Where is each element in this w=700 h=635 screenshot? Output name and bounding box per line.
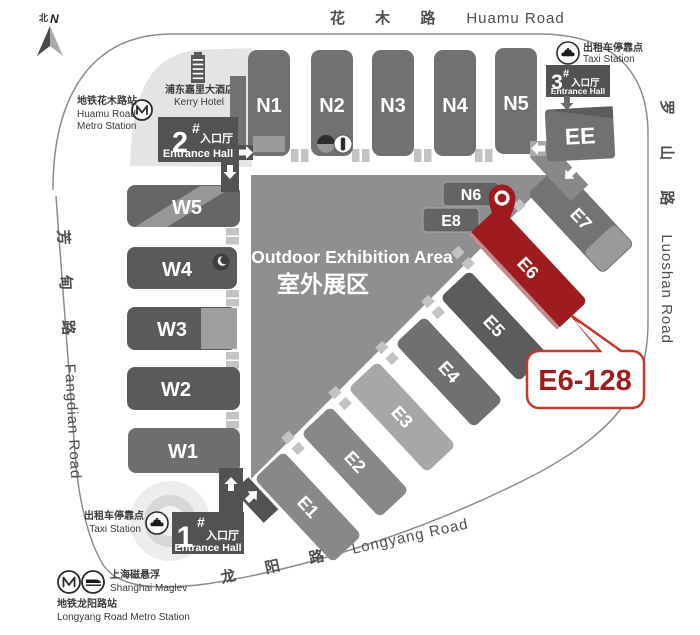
longyang-metro-label-en: Longyang Road Metro Station	[57, 612, 190, 623]
kerry-hotel-label-en: Kerry Hotel	[174, 97, 224, 108]
hall-n4: N4	[434, 50, 476, 156]
maglev-train-icon	[82, 571, 104, 593]
road-label-huamu: 花 木 路Huamu Road	[330, 9, 565, 27]
service-icon	[334, 135, 352, 153]
huamu-metro-label-en2: Metro Station	[77, 121, 136, 132]
road-huamu-en: Huamu Road	[466, 10, 564, 27]
entrance-1-label-zh: 入口厅	[206, 529, 239, 542]
booth-callout: E6-128	[527, 316, 644, 408]
hall-w1-label: W1	[168, 441, 198, 463]
entrance-1-hash: #	[197, 514, 205, 530]
hall-n1: N1	[248, 50, 290, 156]
entrance-3-hash: #	[563, 68, 569, 80]
hall-w1: W1	[128, 428, 240, 473]
hall-ee-label: EE	[564, 122, 596, 150]
hall-n3-label: N3	[380, 95, 406, 117]
entrance-3-label-en: Entrance Hall	[551, 86, 605, 96]
road-luoshan-zh: 罗 山 路	[658, 100, 676, 218]
hall-n5-label: N5	[503, 93, 529, 115]
compass-label-n: N	[50, 12, 59, 26]
huamu-metro-label-en1: Huamu Road	[77, 109, 136, 120]
road-luoshan-en: Luoshan Road	[658, 234, 675, 344]
compass-needle-light	[50, 26, 63, 56]
road-label-luoshan: 罗 山 路Luoshan Road	[658, 100, 676, 344]
road-fangdian-en: Fangdian Road	[61, 363, 84, 479]
road-label-fangdian: 芳 甸 路Fangdian Road	[54, 229, 85, 480]
maglev-label-zh: 上海磁悬浮	[110, 568, 160, 581]
entrance-1-label-en: Entrance Hall	[174, 542, 241, 554]
prayer-room-icon	[213, 254, 230, 271]
longyang-metro-label-zh: 地铁龙阳路站	[57, 597, 117, 610]
kerry-hotel-label-zh: 浦东嘉里大酒店	[165, 83, 235, 96]
taxi-icon	[557, 42, 579, 64]
compass: 北 N	[37, 12, 63, 56]
road-fangdian-zh: 芳 甸 路	[54, 229, 78, 348]
metro-icon	[58, 571, 80, 593]
hall-w3: W3	[127, 307, 237, 350]
booth-number: E6-128	[538, 365, 632, 397]
compass-label-zh: 北	[39, 12, 48, 23]
taxi-top-label-zh: 出租车停靠点	[583, 41, 643, 54]
hall-n5: N5	[495, 48, 537, 154]
entrance-2-label-en: Entrance Hall	[163, 148, 233, 160]
outdoor-label-en: Outdoor Exhibition Area	[251, 247, 453, 267]
hall-e8: E8	[423, 208, 479, 232]
hall-n2-label: N2	[319, 95, 345, 117]
hall-n6-label: N6	[461, 187, 482, 204]
hall-n4-label: N4	[442, 95, 468, 117]
taxi-top-label-en: Taxi Station	[583, 54, 635, 65]
maglev-label-en: Shanghai Maglev	[110, 583, 187, 594]
compass-needle-dark	[37, 26, 50, 56]
hall-w4-label: W4	[162, 259, 193, 281]
entrance-2-hash: #	[192, 120, 200, 136]
hall-w3-label: W3	[157, 319, 187, 341]
taxi-bottom-label-zh: 出租车停靠点	[84, 509, 144, 522]
hall-e8-label: E8	[441, 213, 461, 230]
callout-tail	[572, 316, 624, 353]
hotel-icon	[191, 52, 205, 83]
hall-n1-label: N1	[256, 95, 282, 117]
hall-ee: EE	[545, 106, 616, 161]
hall-w5-label: W5	[172, 197, 202, 219]
dining-icon	[317, 135, 335, 153]
hall-w4: W4	[127, 247, 237, 289]
expo-map-page: 花 木 路Huamu Road 罗 山 路Luoshan Road 芳 甸 路F…	[0, 0, 700, 635]
direction-arrow-icon	[561, 96, 574, 110]
taxi-icon	[146, 512, 168, 534]
huamu-metro-label-zh: 地铁花木路站	[77, 94, 137, 107]
road-longyang-en: Longyang Road	[350, 515, 470, 557]
hall-n2: N2	[311, 50, 353, 156]
hall-w2-label: W2	[161, 379, 191, 401]
entrance-hall-3: 3 # 入口厅 Entrance Hall	[546, 65, 610, 97]
outdoor-label-zh: 室外展区	[277, 271, 369, 297]
entrance-2-label-zh: 入口厅	[200, 132, 233, 145]
expo-map: 花 木 路Huamu Road 罗 山 路Luoshan Road 芳 甸 路F…	[0, 0, 700, 635]
hall-w2: W2	[127, 367, 240, 410]
hall-n3: N3	[372, 50, 414, 156]
taxi-bottom-label-en: Taxi Station	[89, 524, 141, 535]
road-huamu-zh: 花 木 路	[330, 9, 448, 27]
